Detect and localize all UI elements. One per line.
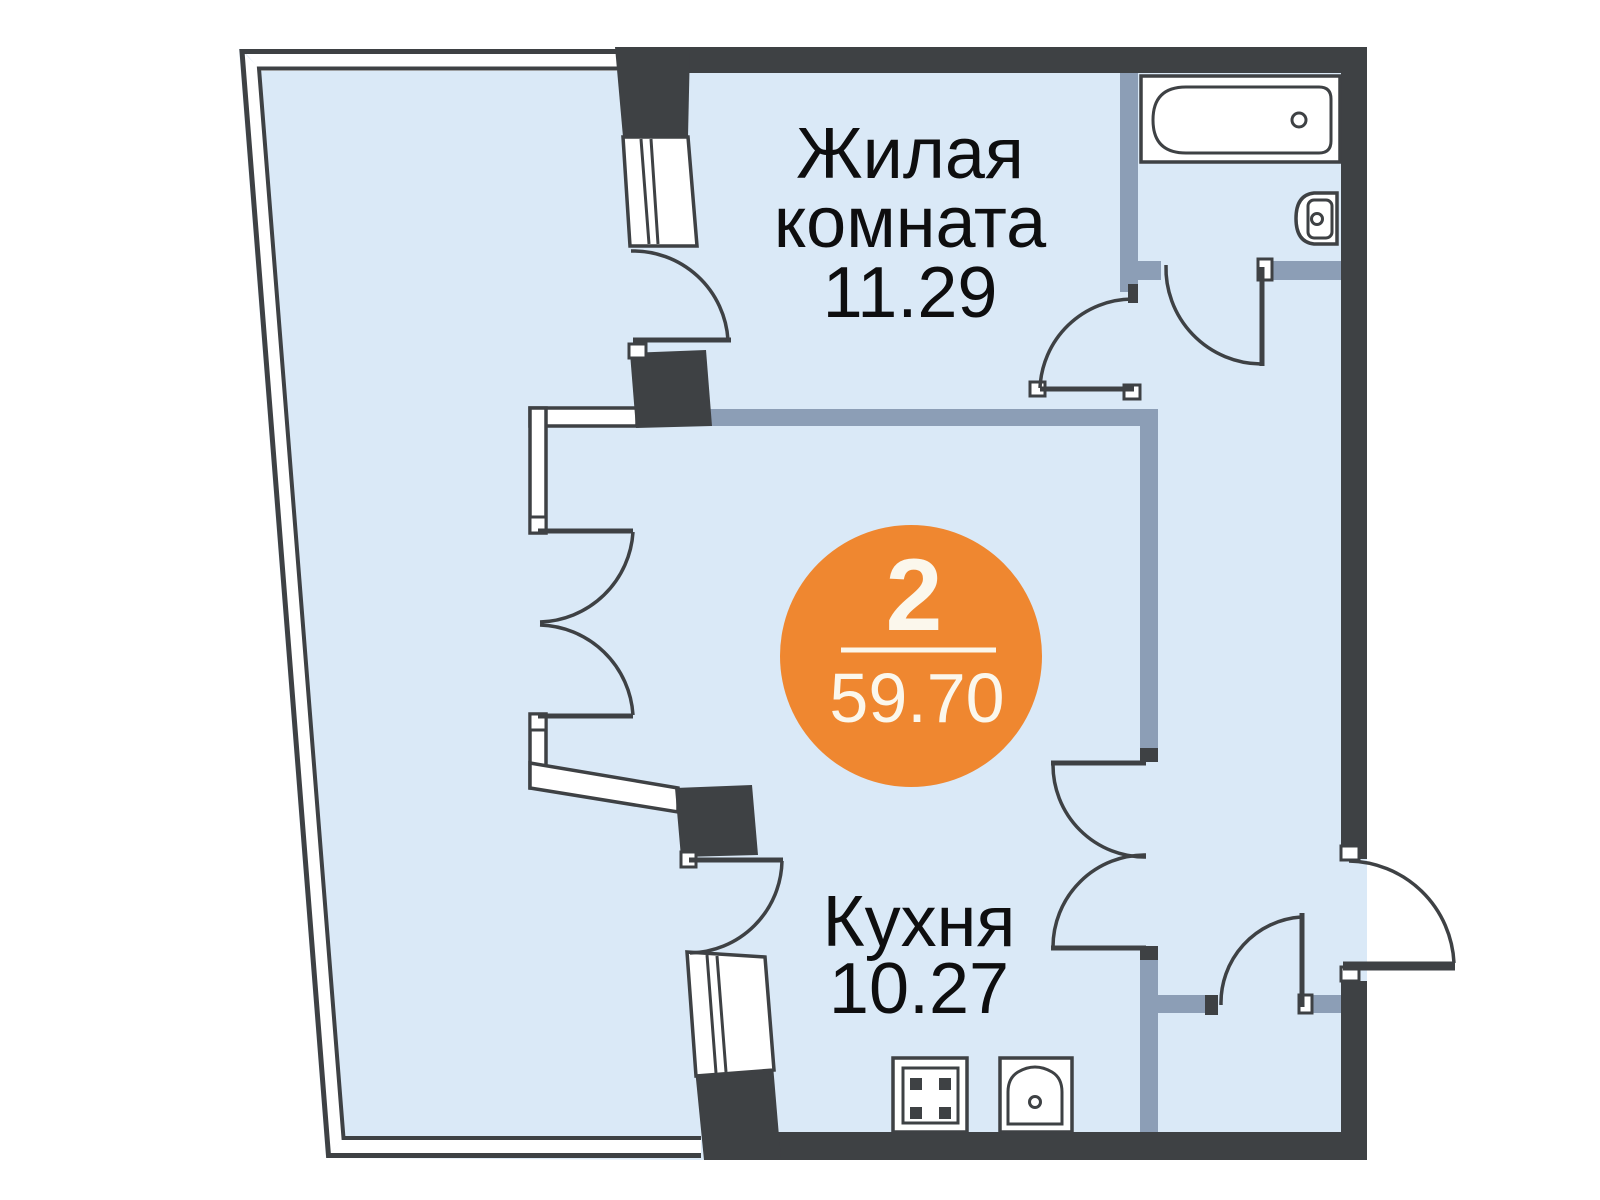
- window-icon-top: [623, 137, 697, 246]
- kitchen-area: 10.27: [829, 949, 1009, 1029]
- washbasin-icon: [1296, 193, 1337, 244]
- badge-rooms-count: 2: [886, 538, 943, 652]
- stove-icon: [893, 1058, 967, 1132]
- kitchen-sink-icon: [1000, 1058, 1072, 1132]
- floor-plan: Жилая комната 11.29 Кухня 10.27 2 59.70: [0, 0, 1600, 1200]
- living-room-name-line2: комната: [774, 183, 1047, 263]
- living-room-name-line1: Жилая: [796, 114, 1024, 194]
- living-room-area: 11.29: [823, 253, 998, 333]
- floor-plan-svg: Жилая комната 11.29 Кухня 10.27 2 59.70: [0, 0, 1600, 1200]
- window-icon-bottom: [687, 952, 774, 1076]
- bathtub-icon: [1141, 76, 1340, 162]
- area-badge: 2 59.70: [780, 525, 1042, 787]
- kitchen-label: Кухня 10.27: [823, 882, 1016, 1029]
- badge-total-area: 59.70: [829, 659, 1004, 737]
